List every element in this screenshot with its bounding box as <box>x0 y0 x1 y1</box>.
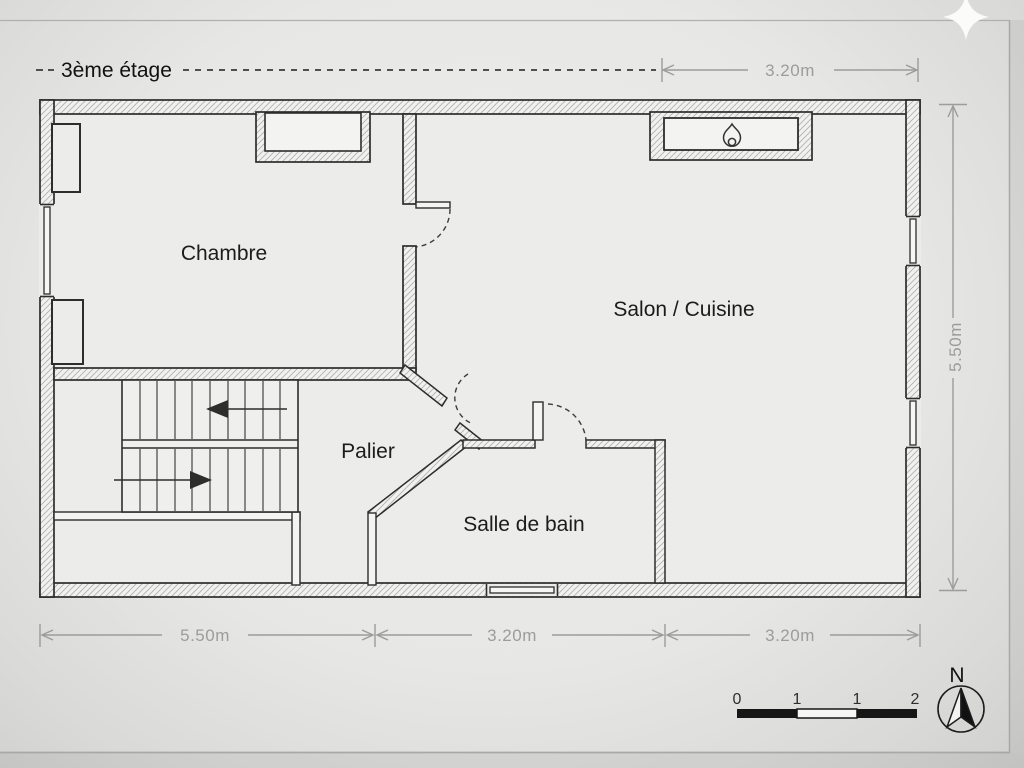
wall-chambre-salon-lower <box>403 246 416 370</box>
wall-bathroom-top-right <box>586 440 665 448</box>
room-label-salon-cuisine: Salon / Cuisine <box>613 298 754 321</box>
scale-tick-1-right: 1 <box>853 691 862 708</box>
wall-right <box>906 100 920 597</box>
staircase <box>114 380 298 512</box>
wall-chambre-salon-upper <box>403 114 416 204</box>
floor-plan-photo: 3ème étage <box>0 0 1024 768</box>
scale-bar: 0 1 1 2 <box>733 691 920 718</box>
closet-top-left <box>52 124 80 192</box>
wall-closet-right <box>292 512 300 585</box>
room-label-salle-de-bain: Salle de bain <box>463 513 584 536</box>
dimension-top: 3.20m <box>662 58 918 82</box>
wall-below-stairs <box>54 512 300 520</box>
window-bathroom-bottom <box>486 584 558 596</box>
door-jamb-chambre <box>416 202 450 208</box>
door-jamb-bathroom <box>533 402 543 440</box>
fireplace <box>650 112 812 160</box>
wall-bottom <box>40 583 920 597</box>
window-right-wall-upper <box>905 216 921 266</box>
dimension-bottom-right-label: 3.20m <box>765 626 815 645</box>
wall-bathroom-top-left <box>463 440 535 448</box>
dimension-bottom-middle-label: 3.20m <box>487 626 537 645</box>
dimension-right: 5.50m <box>939 105 967 591</box>
scale-tick-2: 2 <box>911 691 920 708</box>
dimension-bottom: 5.50m 3.20m 3.20m <box>40 624 920 647</box>
closet-mid-left <box>52 300 83 364</box>
scale-tick-0: 0 <box>733 691 742 708</box>
dimension-top-label: 3.20m <box>765 61 815 80</box>
floor-plan-drawing: 3ème étage <box>0 0 1024 768</box>
dimension-right-label: 5.50m <box>946 322 965 372</box>
scale-tick-1-left: 1 <box>793 691 802 708</box>
room-label-chambre: Chambre <box>181 242 267 265</box>
window-left-wall <box>39 204 55 297</box>
window-right-wall-lower <box>905 398 921 448</box>
dimension-bottom-left-label: 5.50m <box>180 626 230 645</box>
wall-chambre-bottom <box>54 368 416 380</box>
alcove-chambre <box>256 112 370 162</box>
north-compass-icon: N <box>938 664 984 732</box>
north-label: N <box>949 664 964 687</box>
wall-bathroom-right <box>655 440 665 583</box>
floor-title-label: 3ème étage <box>61 59 172 82</box>
floor-title: 3ème étage <box>36 59 656 82</box>
wall-bathroom-left <box>368 513 376 585</box>
room-label-palier: Palier <box>341 440 395 463</box>
